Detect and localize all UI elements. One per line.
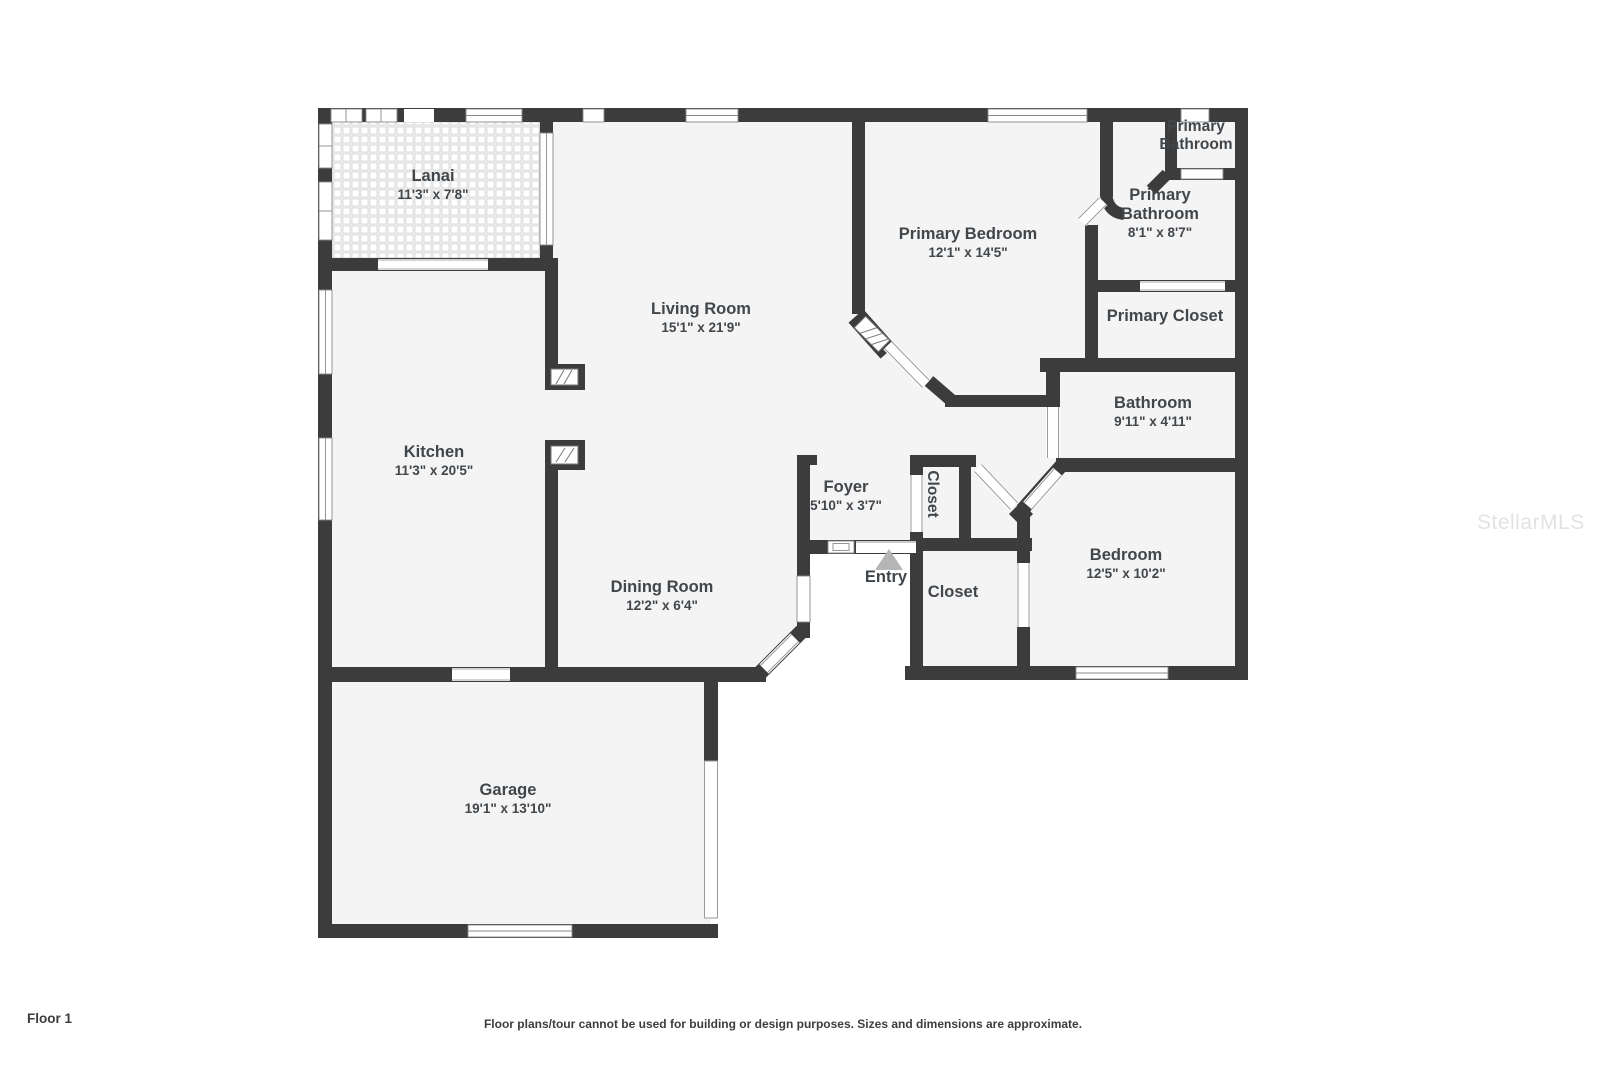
floorplan-drawing [0,0,1600,1066]
room-fill-layer [325,115,1242,931]
watermark-text: StellarMLS [1477,511,1585,535]
lanai-tile-floor [332,122,540,258]
floor-number-label: Floor 1 [27,1011,72,1026]
disclaimer-text: Floor plans/tour cannot be used for buil… [484,1017,1082,1031]
floorplan-page: Lanai 11'3" x 7'8" Living Room 15'1" x 2… [0,0,1600,1066]
